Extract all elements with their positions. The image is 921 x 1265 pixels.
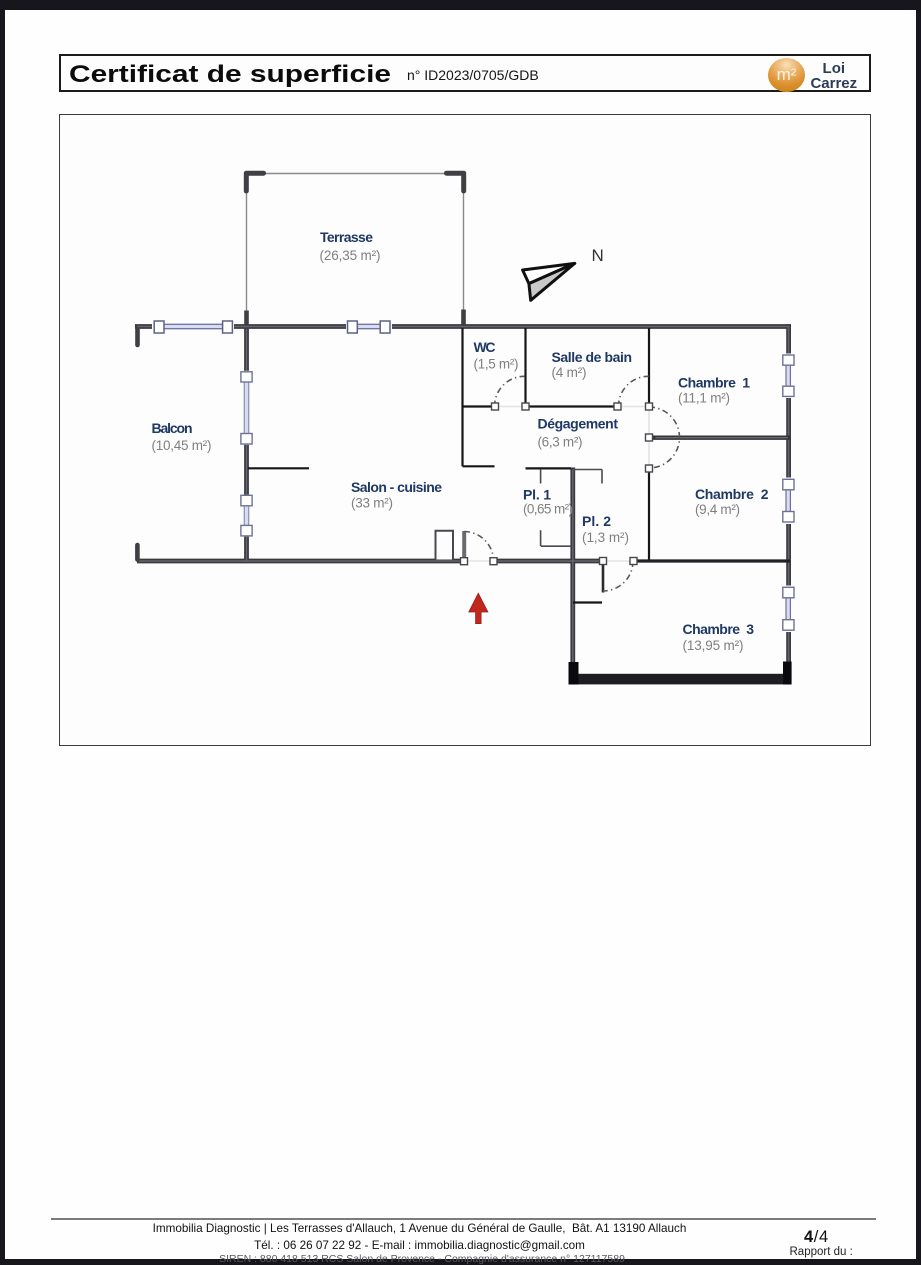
svg-text:Dégagement: Dégagement (538, 416, 619, 432)
svg-text:Chambre 3: Chambre 3 (683, 621, 755, 637)
svg-text:(11,1 m²): (11,1 m²) (678, 391, 730, 406)
svg-text:(6,3 m²): (6,3 m²) (538, 434, 583, 449)
svg-text:(1,3 m²): (1,3 m²) (582, 530, 629, 545)
svg-text:(10,45 m²): (10,45 m²) (152, 438, 212, 453)
svg-text:Salon - cuisine: Salon - cuisine (351, 479, 442, 495)
svg-text:Balcon: Balcon (152, 420, 193, 436)
svg-text:Pl. 2: Pl. 2 (582, 513, 611, 529)
svg-text:Chambre 2: Chambre 2 (695, 486, 769, 502)
svg-text:Chambre 1: Chambre 1 (678, 375, 750, 391)
svg-text:(9,4 m²): (9,4 m²) (695, 502, 740, 517)
svg-text:(1,5 m²): (1,5 m²) (474, 357, 519, 372)
svg-text:N: N (592, 246, 604, 265)
svg-text:(33 m²): (33 m²) (351, 496, 393, 511)
svg-text:Salle de bain: Salle de bain (552, 349, 633, 365)
svg-text:(13,95 m²): (13,95 m²) (683, 638, 744, 653)
svg-text:Terrasse: Terrasse (320, 229, 373, 245)
svg-text:Pl. 1: Pl. 1 (523, 486, 551, 502)
svg-text:(4 m²): (4 m²) (552, 365, 587, 380)
svg-text:(0,65 m²): (0,65 m²) (523, 502, 573, 517)
svg-text:(26,35 m²): (26,35 m²) (320, 248, 381, 263)
svg-text:WC: WC (474, 339, 496, 355)
